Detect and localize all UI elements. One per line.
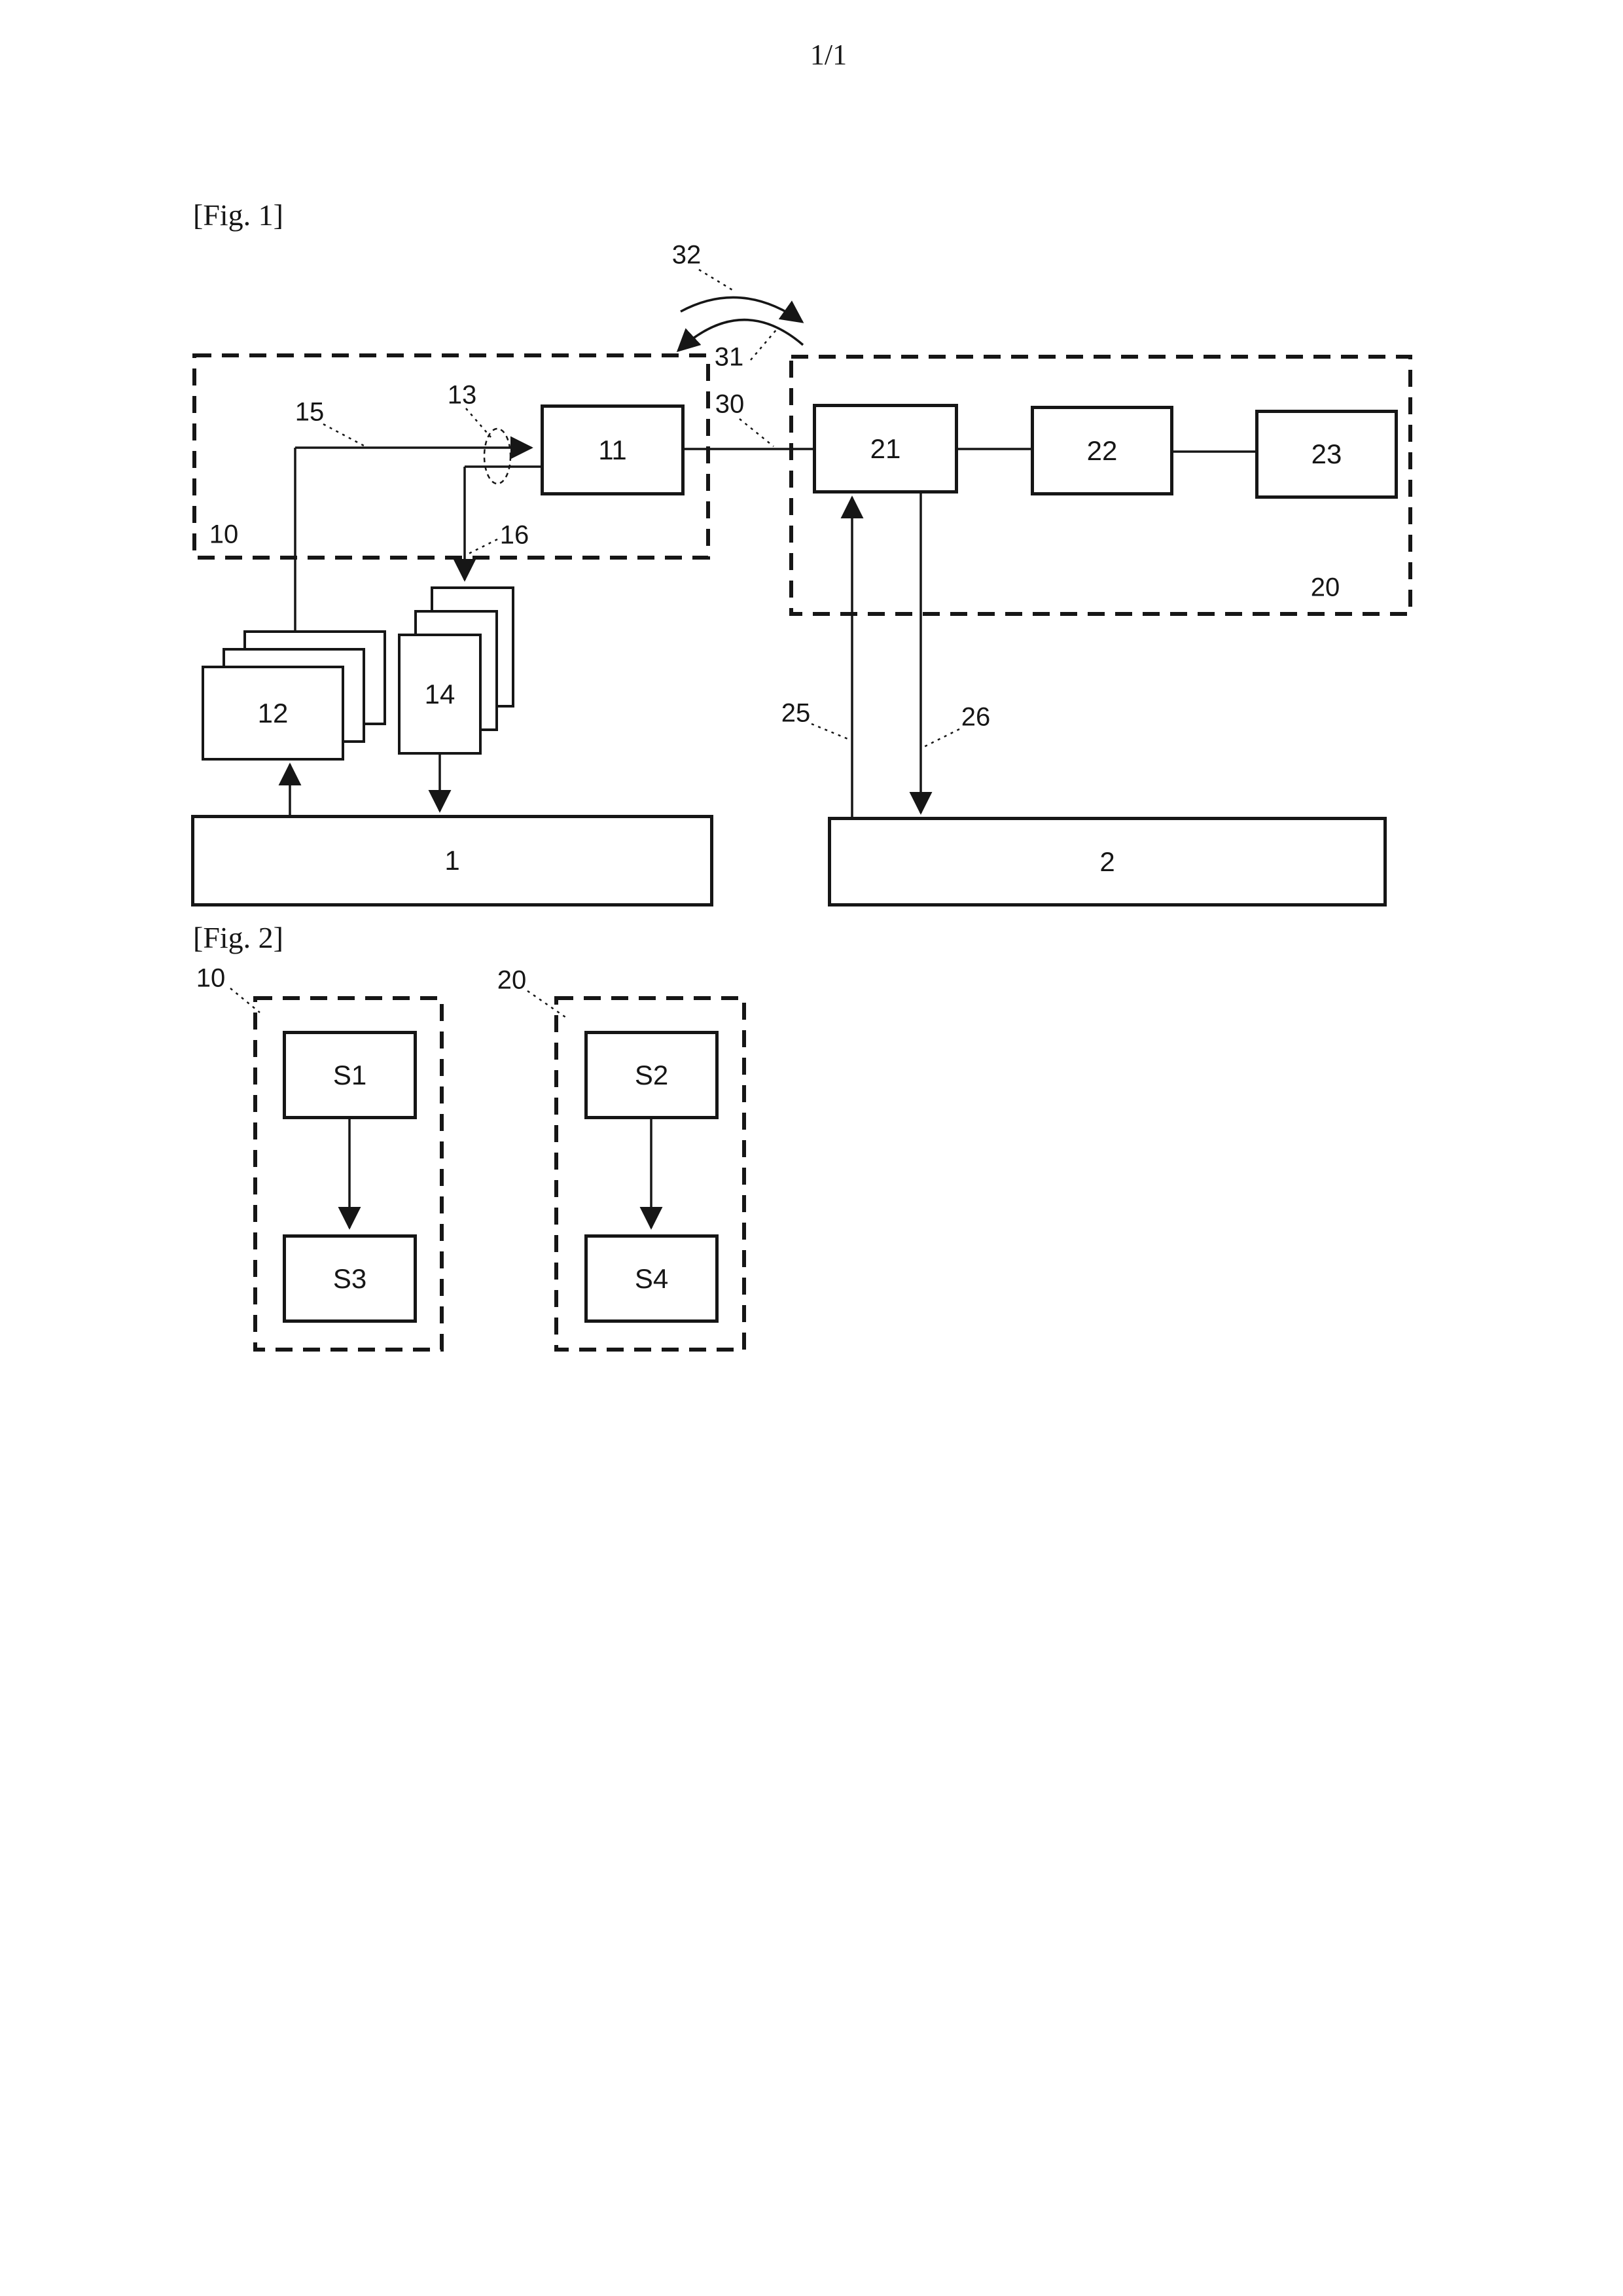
box-21-label: 21 [870, 433, 901, 465]
stack-14-card-front: 14 [398, 634, 482, 755]
box-1: 1 [191, 815, 713, 906]
box-s3: S3 [283, 1234, 417, 1323]
box-s1-label: S1 [333, 1060, 366, 1091]
box-2-label: 2 [1099, 846, 1115, 878]
box-11-label: 11 [598, 435, 627, 466]
fig1-ref-15: 15 [295, 398, 325, 427]
fig1-ref-16: 16 [500, 521, 529, 550]
box-1-label: 1 [444, 845, 459, 876]
box-23-label: 23 [1311, 439, 1342, 470]
box-21: 21 [813, 404, 958, 493]
fig1-ref-30: 30 [715, 390, 745, 420]
box-s2: S2 [584, 1031, 719, 1119]
box-s4: S4 [584, 1234, 719, 1323]
fig2-ref-20: 20 [497, 966, 527, 996]
box-22-label: 22 [1087, 435, 1118, 467]
box-s3-label: S3 [333, 1263, 366, 1295]
fig2-ref-10: 10 [196, 964, 226, 994]
box-11: 11 [541, 404, 685, 495]
fig1-ref-10: 10 [209, 520, 239, 550]
box-s1: S1 [283, 1031, 417, 1119]
fig1-ref-20: 20 [1311, 573, 1340, 603]
fig1-ref-25: 25 [781, 699, 811, 728]
diagram-linework [0, 0, 1623, 2296]
box-2: 2 [828, 817, 1387, 906]
box-22: 22 [1031, 406, 1173, 495]
box-23: 23 [1255, 410, 1398, 499]
fig1-ref-31: 31 [715, 343, 744, 372]
box-s2-label: S2 [635, 1060, 668, 1091]
stack-12-label: 12 [204, 668, 342, 758]
stack-14-label: 14 [401, 636, 479, 752]
patent-drawing-page: 1/1 [Fig. 1] [Fig. 2] [0, 0, 1623, 2296]
stack-12-card-front: 12 [202, 666, 344, 761]
fig1-ref-32: 32 [672, 241, 702, 270]
fig1-ref-13: 13 [448, 381, 477, 410]
antenna-coil-icon [484, 429, 510, 484]
box-s4-label: S4 [635, 1263, 668, 1295]
fig1-ref-26: 26 [961, 703, 991, 732]
